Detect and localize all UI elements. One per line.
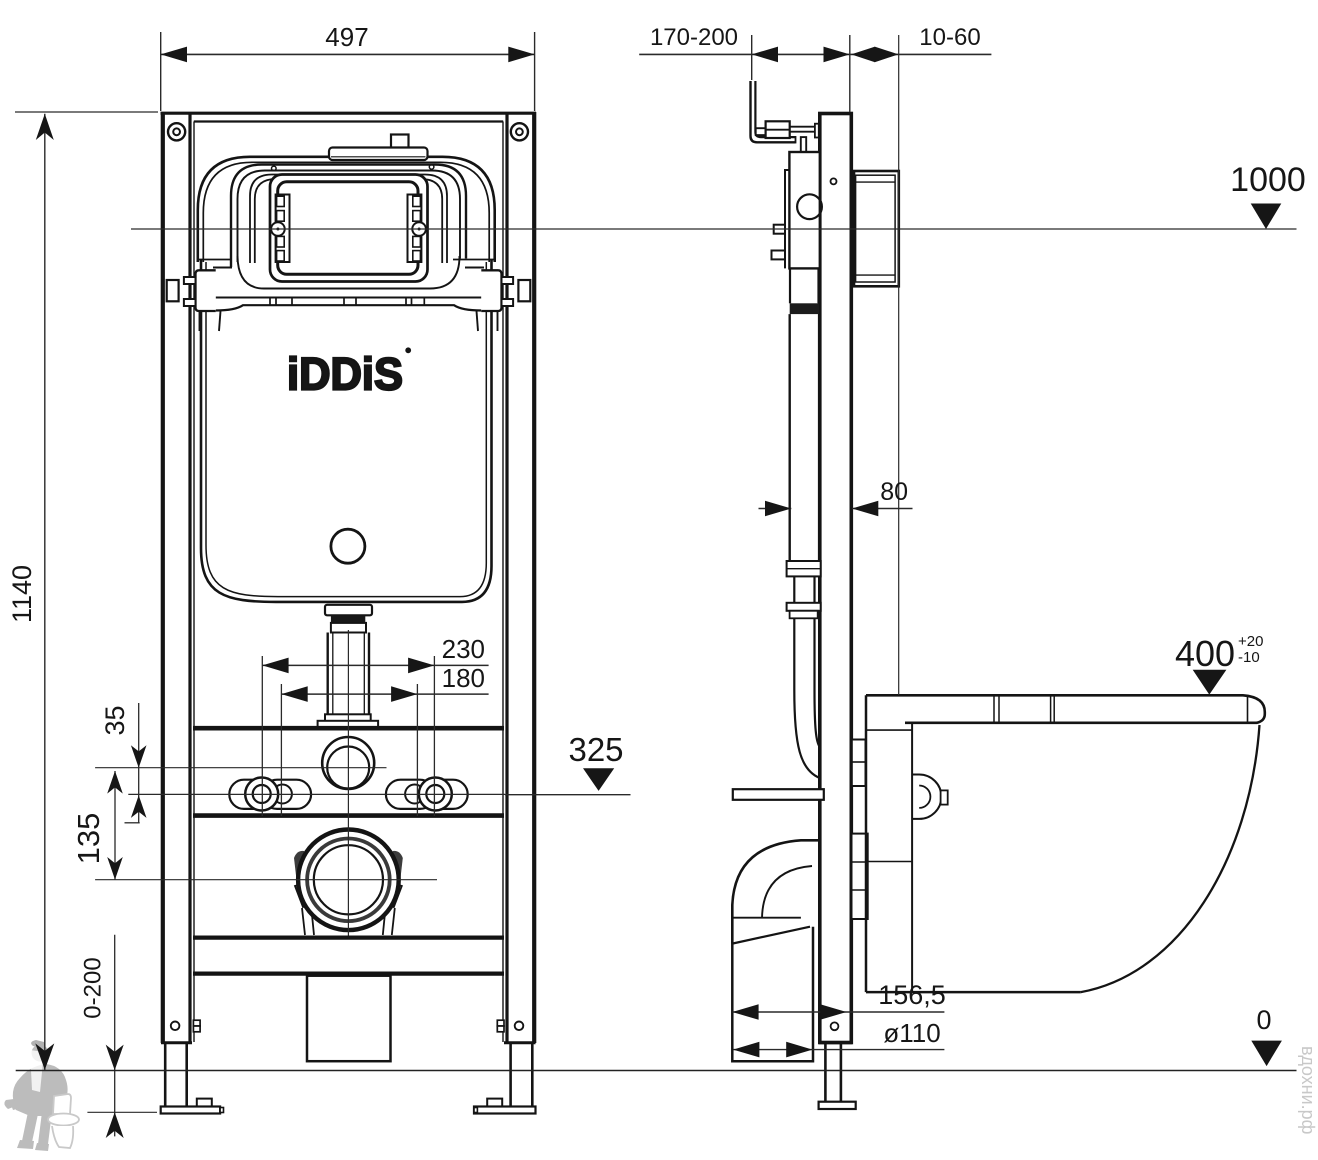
svg-text:-10: -10 [1238, 649, 1260, 666]
svg-text:0: 0 [1256, 1005, 1271, 1035]
svg-text:1000: 1000 [1230, 161, 1306, 199]
svg-text:1140: 1140 [7, 565, 37, 623]
svg-text:35: 35 [100, 705, 130, 735]
svg-text:170-200: 170-200 [650, 24, 738, 51]
svg-text:325: 325 [568, 731, 623, 768]
svg-text:вдохни.рф: вдохни.рф [1298, 1046, 1318, 1135]
svg-text:10-60: 10-60 [919, 24, 980, 51]
svg-text:156,5: 156,5 [878, 980, 946, 1010]
svg-text:400: 400 [1175, 633, 1235, 674]
svg-text:iDDiS: iDDiS [287, 349, 403, 400]
svg-text:0-200: 0-200 [80, 957, 107, 1018]
svg-text:180: 180 [442, 663, 485, 693]
svg-text:230: 230 [442, 634, 485, 664]
svg-text:80: 80 [880, 478, 908, 506]
svg-text:135: 135 [71, 813, 106, 865]
svg-text:ø110: ø110 [883, 1018, 940, 1048]
svg-text:+20: +20 [1238, 633, 1263, 650]
svg-text:497: 497 [325, 22, 368, 52]
